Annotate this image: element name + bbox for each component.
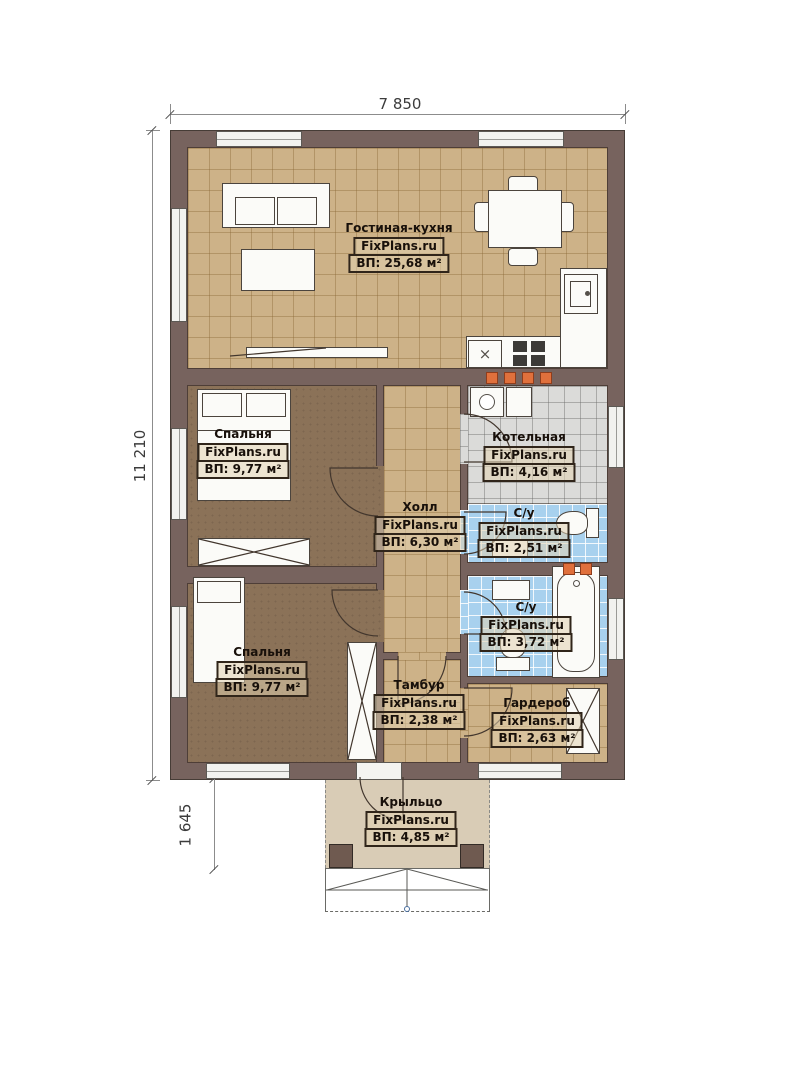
room-label-wardrobe: Гардероб FixPlans.ru ВП: 2,63 м² [490,696,583,748]
room-area: ВП: 25,68 м² [348,254,449,273]
vent-marker [563,563,575,575]
room-area: ВП: 9,77 м² [215,678,308,697]
vent-marker [580,563,592,575]
dishwasher: × [468,340,502,368]
room-area: ВП: 4,16 м² [482,463,575,482]
washing-machine-drum-icon [479,394,495,410]
room-label-boiler-room: Котельная FixPlans.ru ВП: 4,16 м² [482,430,575,482]
pillow [202,393,242,417]
room-name: Спальня [214,427,272,441]
window-wardrobe-bottom [478,763,562,779]
bathroom-sink [492,580,530,600]
boiler-cabinet [506,387,532,417]
dishwasher-x-icon: × [479,345,492,363]
doorway-bathroom-2 [460,590,468,634]
doorway-boiler [460,414,468,464]
window-bedroom1-left [171,428,187,520]
pillow [197,581,241,603]
vent-marker [486,372,498,384]
stove-burner [513,355,527,366]
room-area: ВП: 2,38 м² [372,711,465,730]
pillow [246,393,286,417]
dimension-line-porch [214,778,215,870]
room-label-bathroom-2: С/у FixPlans.ru ВП: 3,72 м² [479,600,572,652]
room-area: ВП: 2,51 м² [477,539,570,558]
dimension-width-top: 7 850 [360,95,440,113]
room-area: ВП: 6,30 м² [373,533,466,552]
sofa-cushion [277,197,317,225]
dimension-porch-height: 1 645 [177,798,195,853]
room-label-bedroom-1: Спальня FixPlans.ru ВП: 9,77 м² [196,427,289,479]
room-name: Крыльцо [380,795,443,809]
room-label-bathroom-1: С/у FixPlans.ru ВП: 2,51 м² [477,506,570,558]
doorway-bedroom-2 [376,590,384,642]
doorway-hall-vestibule [398,652,446,660]
dining-table [488,190,562,248]
stove-burner [513,341,527,352]
window-bath2-right [608,598,624,660]
room-area: ВП: 2,63 м² [490,729,583,748]
bathtub-drain-icon [573,580,580,587]
dining-chair [508,248,538,266]
toilet-tank [496,657,530,671]
window-living-left [171,208,187,322]
stove-burner [531,341,545,352]
room-name: Спальня [233,645,291,659]
sofa-cushion [235,197,275,225]
room-name: Тамбур [394,678,445,692]
window-bedroom2-bottom [206,763,290,779]
floor-plan-canvas: 7 850 11 210 1 645 [0,0,792,1080]
vent-marker [504,372,516,384]
room-name: Гостиная-кухня [345,221,452,235]
window-top-right [478,131,564,147]
room-label-bedroom-2: Спальня FixPlans.ru ВП: 9,77 м² [215,645,308,697]
porch-column [329,844,353,868]
room-name: С/у [515,600,536,614]
porch-column [460,844,484,868]
room-label-porch: Крыльцо FixPlans.ru ВП: 4,85 м² [364,795,457,847]
wardrobe-cabinet [198,538,310,566]
room-area: ВП: 4,85 м² [364,828,457,847]
room-label-vestibule: Тамбур FixPlans.ru ВП: 2,38 м² [372,678,465,730]
room-area: ВП: 9,77 м² [196,460,289,479]
dimension-height-left: 11 210 [131,421,149,491]
room-label-living-kitchen: Гостиная-кухня FixPlans.ru ВП: 25,68 м² [345,221,452,273]
dimension-line-left [152,130,153,780]
stove-burner [531,355,545,366]
tv-console [246,347,388,358]
dimension-line-top [170,114,625,115]
vent-marker [522,372,534,384]
room-name: Холл [402,500,437,514]
window-top-left [216,131,302,147]
room-name: Котельная [492,430,566,444]
window-boiler-right [608,406,624,468]
porch-steps [325,868,490,912]
room-label-hall: Холл FixPlans.ru ВП: 6,30 м² [373,500,466,552]
room-area: ВП: 3,72 м² [479,633,572,652]
vent-marker [540,372,552,384]
coffee-table [241,249,315,291]
window-bedroom2-left [171,606,187,698]
room-name: С/у [513,506,534,520]
faucet-icon [585,291,590,296]
doorway-entrance [356,762,402,780]
room-name: Гардероб [503,696,570,710]
